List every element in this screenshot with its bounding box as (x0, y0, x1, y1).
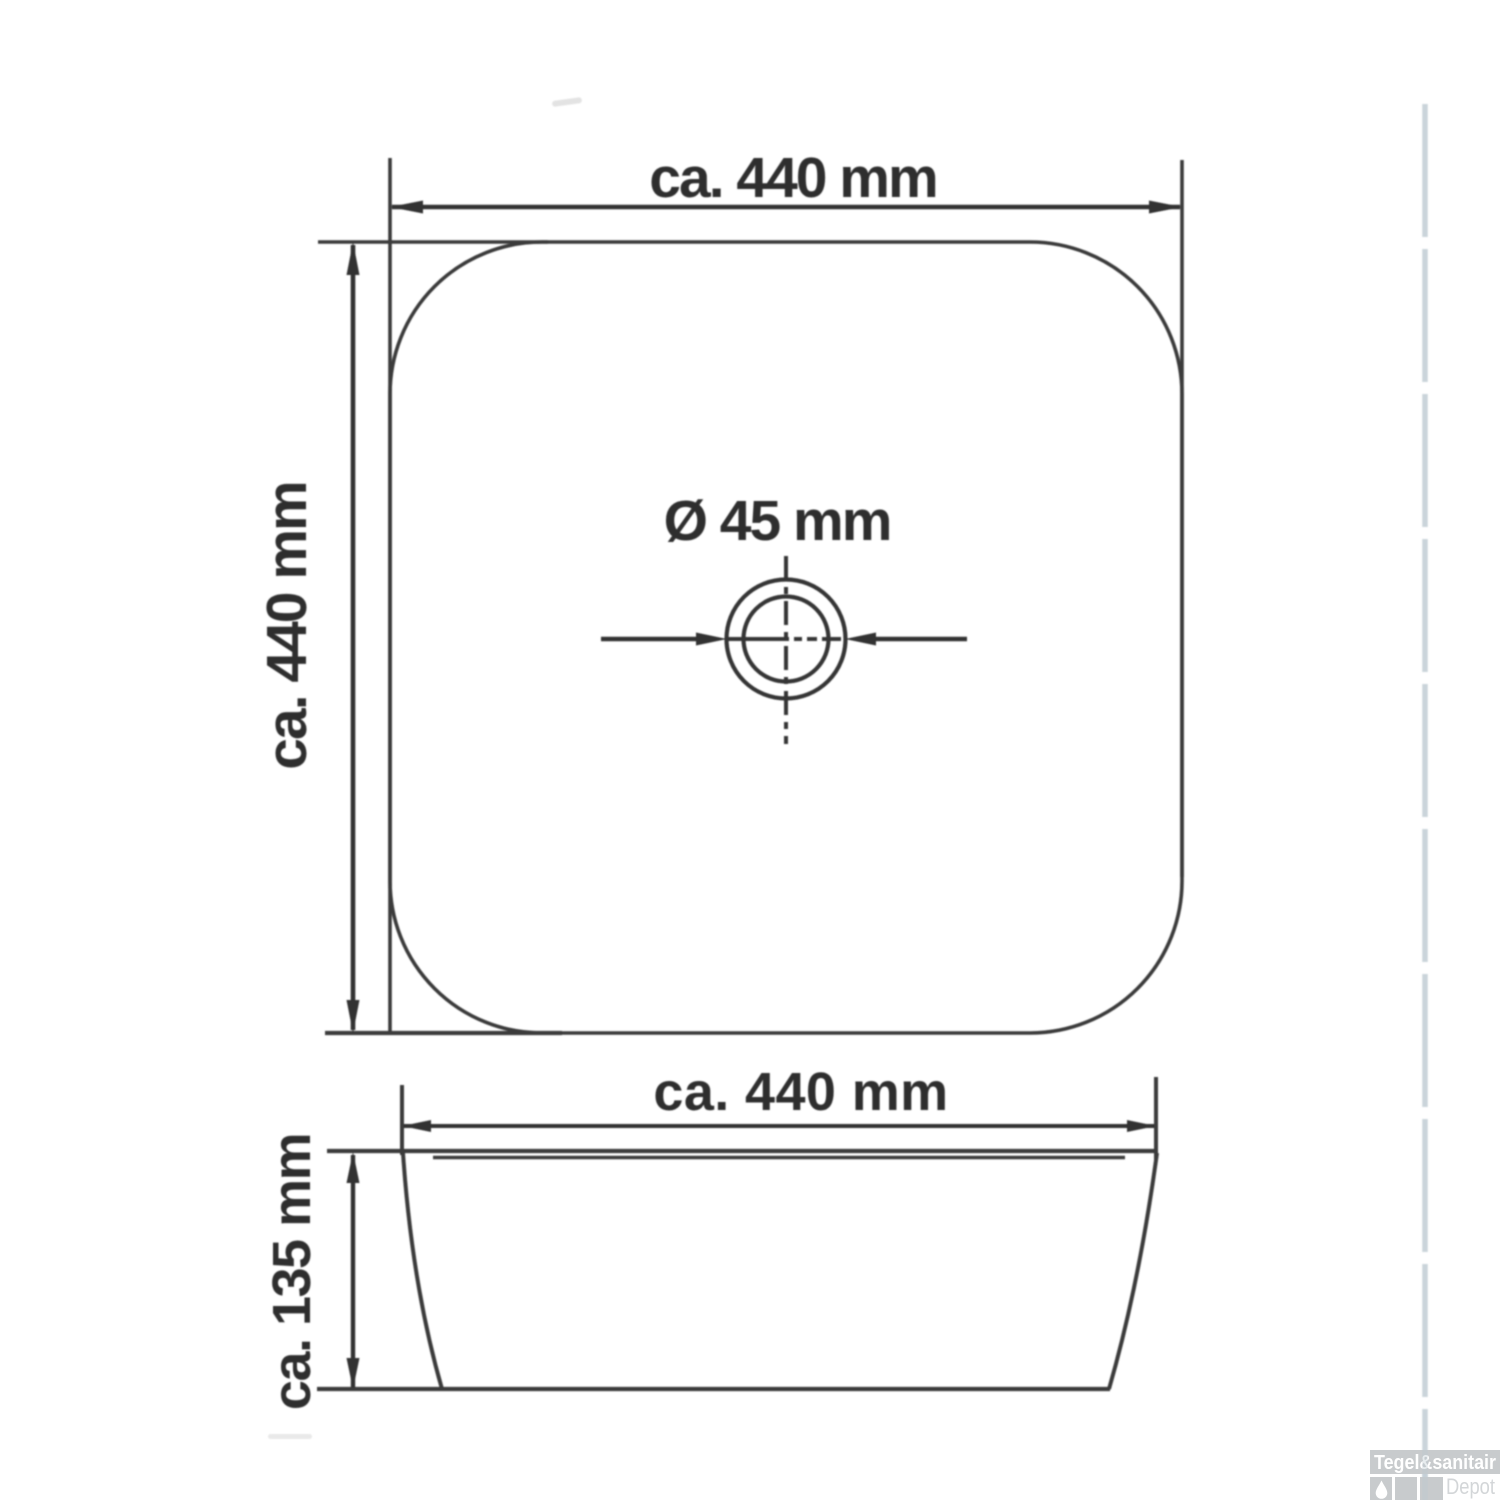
svg-text:Depot: Depot (1446, 1474, 1495, 1499)
svg-text:ca. 440 mm: ca. 440 mm (255, 482, 319, 769)
svg-text:ca. 135 mm: ca. 135 mm (262, 1134, 322, 1410)
svg-text:ca. 440 mm: ca. 440 mm (653, 1062, 948, 1122)
svg-text:Ø 45 mm: Ø 45 mm (664, 489, 891, 553)
svg-text:Tegel&sanitair: Tegel&sanitair (1374, 1452, 1496, 1474)
svg-text:ca. 440 mm: ca. 440 mm (649, 146, 936, 210)
